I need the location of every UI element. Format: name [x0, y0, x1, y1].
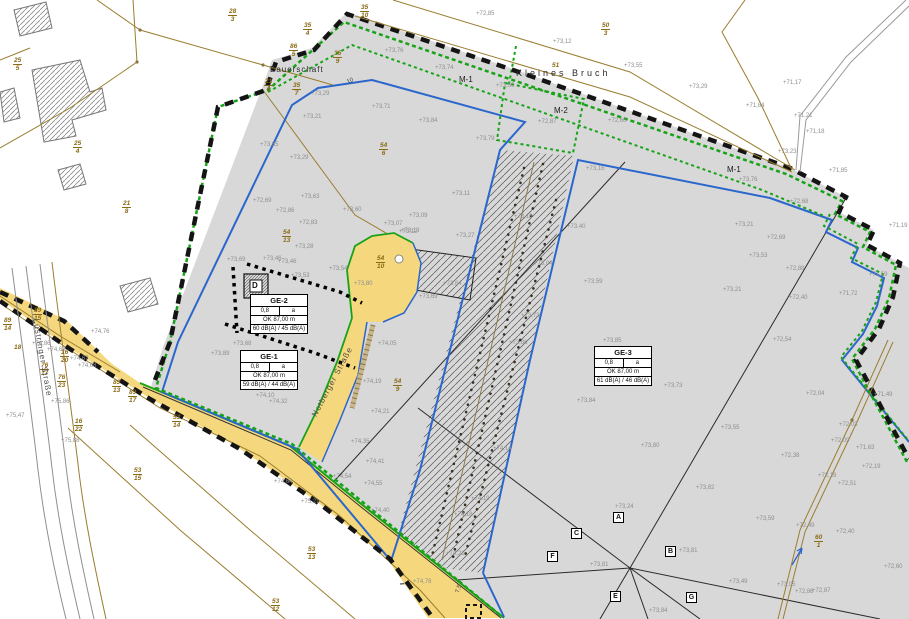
elevation-label: +72,69 — [253, 198, 272, 204]
elevation-label: +73,84 — [577, 398, 596, 404]
elevation-label: +73,54 — [329, 266, 348, 272]
zone-bauweise: a — [624, 359, 652, 367]
elevation-label: +72,18 — [818, 473, 837, 479]
parcel-number: 25 — [13, 57, 22, 65]
elevation-label: +73,29 — [689, 84, 708, 90]
elevation-label: +74,32 — [269, 399, 288, 405]
elevation-label: +72,68 — [790, 199, 809, 205]
elevation-label: +72,83 — [299, 220, 318, 226]
elevation-label: +71,19 — [889, 223, 908, 229]
elevation-label: +73,73 — [521, 313, 540, 319]
elevation-label: +74,54 — [333, 474, 352, 480]
elevation-label: +73,40 — [567, 224, 586, 230]
elevation-label: +74,19 — [471, 496, 490, 502]
elevation-label: +75,86 — [51, 399, 70, 405]
elevation-label: +73,35 — [260, 142, 279, 148]
parcel-number: 53 — [172, 414, 181, 422]
parcel-denominator: 13 — [282, 237, 291, 244]
elevation-label: +74,18 — [454, 512, 473, 518]
parcel-label: 7623 — [57, 374, 66, 389]
elevation-label: +74,21 — [371, 409, 390, 415]
elevation-label: +74,14 — [493, 446, 512, 452]
zone-grz-row: 0,8a — [251, 307, 307, 316]
elevation-label: +72,40 — [836, 529, 855, 535]
elevation-label: +73,76 — [385, 48, 404, 54]
parcel-denominator: 15 — [133, 475, 142, 482]
parcel-denominator: 14 — [172, 422, 181, 429]
section-marker-g: G — [686, 592, 697, 603]
map-label-layer: +72,85+73,12+73,76+73,74+73,60+73,71+73,… — [0, 0, 909, 619]
elevation-label: +71,21 — [794, 113, 813, 119]
parcel-denominator: 4 — [303, 30, 312, 37]
parcel-label: 8914 — [3, 317, 12, 332]
parcel-number: 89 — [112, 379, 121, 387]
elevation-label: +72,03 — [839, 422, 858, 428]
elevation-label: +73,05 — [777, 582, 796, 588]
parcel-label: 359 — [333, 50, 342, 65]
section-marker-f: F — [547, 551, 558, 562]
zone-bauweise: a — [270, 363, 298, 371]
parcel-number: 54 — [282, 229, 291, 237]
zone-info-box-ge-1: GE-10,8aOK 87,00 m59 dB(A) / 44 dB(A) — [240, 350, 298, 390]
parcel-number: 86 — [289, 43, 298, 51]
parcel-number: 54 — [379, 142, 388, 150]
elevation-label: +71,49 — [874, 392, 893, 398]
elevation-label: +73,81 — [679, 548, 698, 554]
elevation-label: +73,12 — [553, 39, 572, 45]
parcel-number: 53 — [307, 546, 316, 554]
elevation-label: +73,55 — [624, 63, 643, 69]
parcel-label: 8917 — [128, 389, 137, 404]
parcel-number: 16 — [74, 418, 83, 426]
elevation-label: +73,16 — [586, 166, 605, 172]
parcel-label: 503 — [601, 22, 610, 37]
elevation-label: +72,60 — [884, 564, 903, 570]
parcel-denominator: 17 — [128, 397, 137, 404]
parcel-number: 53 — [133, 467, 142, 475]
elevation-label: +73,69 — [419, 294, 438, 300]
elevation-label: +74,76 — [91, 329, 110, 335]
elevation-label: +73,59 — [584, 279, 603, 285]
elevation-label: +72,19 — [862, 464, 881, 470]
parcel-number: 35 — [303, 22, 312, 30]
elevation-label: +74,78 — [413, 579, 432, 585]
parcel-number: 54 — [393, 378, 402, 386]
parcel-number: 21 — [264, 78, 273, 86]
elevation-label: +74,21 — [446, 551, 465, 557]
parcel-label: 216 — [264, 78, 273, 93]
elevation-label: +73,55 — [721, 425, 740, 431]
elevation-label: +73,60 — [496, 83, 515, 89]
elevation-label: +72,87 — [812, 588, 831, 594]
elevation-label: +72,86 — [795, 589, 814, 595]
elevation-label: +73,21 — [735, 222, 754, 228]
zoning-plan-map: +72,85+73,12+73,76+73,74+73,60+73,71+73,… — [0, 0, 909, 619]
elevation-label: +73,76 — [739, 177, 758, 183]
zone-grz: 0,8 — [251, 307, 280, 315]
zone-grz-row: 0,8a — [595, 359, 651, 368]
parcel-label: 255 — [13, 57, 22, 72]
parcel-denominator: 5 — [13, 65, 22, 72]
elevation-label: +73,09 — [409, 213, 428, 219]
elevation-label: +74,67 — [70, 356, 89, 362]
elevation-label: +73,73 — [664, 383, 683, 389]
elevation-label: +73,84 — [419, 118, 438, 124]
elevation-label: +73,74 — [435, 65, 454, 71]
elevation-label: +73,12 — [399, 229, 418, 235]
elevation-label: +73,84 — [443, 281, 462, 287]
parcel-number: 89 — [128, 389, 137, 397]
elevation-label: +73,63 — [301, 194, 320, 200]
elevation-label: +73,80 — [641, 443, 660, 449]
section-marker-e: E — [610, 591, 621, 602]
m1-label-b: M-1 — [727, 165, 741, 174]
bauerschaft-label: Bauerschaft — [270, 65, 324, 74]
elevation-label: +72,54 — [773, 337, 792, 343]
elevation-label: +74,35 — [351, 439, 370, 445]
parcel-number: 35 — [360, 4, 369, 12]
zone-info-box-ge-3: GE-30,8aOK 87,00 m61 dB(A) / 46 dB(A) — [594, 346, 652, 386]
elevation-label: +73,27 — [456, 233, 475, 239]
street-luestringer-strasse: Lüstringer Straße — [31, 318, 54, 397]
elevation-label: +74,64 — [274, 479, 293, 485]
elevation-label: +73,85 — [603, 338, 622, 344]
parcel-denominator: 13 — [112, 387, 121, 394]
zone-height: OK 87,00 m — [595, 368, 651, 377]
elevation-label: +73,71 — [372, 104, 391, 110]
parcel-number: 35 — [333, 50, 342, 58]
parcel-denominator: 10 — [376, 263, 385, 270]
elevation-label: +73,89 — [211, 351, 230, 357]
parcel-label: 254 — [73, 140, 82, 155]
elevation-label: +73,18 — [514, 214, 533, 220]
elevation-label: +72,88 — [786, 266, 805, 272]
parcel-number: 16 — [60, 349, 69, 357]
parcel-number: 76 — [57, 374, 66, 382]
parcel-label: 5413 — [282, 229, 291, 244]
parcel-label: 5314 — [172, 414, 181, 429]
parcel-number: 50 — [601, 22, 610, 30]
elevation-label: +71,18 — [806, 129, 825, 135]
elevation-label: +72,60 — [608, 118, 627, 124]
elevation-label: +73,21 — [723, 287, 742, 293]
parcel-denominator: 1 — [814, 542, 823, 549]
elevation-label: +73,24 — [615, 504, 634, 510]
parcel-label: 549 — [393, 378, 402, 393]
parcel-denominator: 8 — [122, 208, 131, 215]
parcel-label: 865 — [289, 43, 298, 58]
parcel-number: 60 — [814, 534, 823, 542]
parcel-number: 28 — [228, 8, 237, 16]
elevation-label: +74,40 — [371, 508, 390, 514]
parcel-number: 54 — [376, 255, 385, 263]
elevation-label: +73,23 — [778, 149, 797, 155]
elevation-label: +73,28 — [295, 244, 314, 250]
zone-id: GE-1 — [241, 351, 297, 363]
zone-grz: 0,8 — [595, 359, 624, 367]
zone-height: OK 87,00 m — [241, 372, 297, 381]
parcel-denominator: 6 — [379, 150, 388, 157]
d-marker-letter: D — [252, 281, 258, 290]
zone-height: OK 87,00 m — [251, 316, 307, 325]
zone-id: GE-3 — [595, 347, 651, 359]
kleines-bruch-label: Kleines Bruch — [516, 68, 611, 78]
parcel-label: 5312 — [271, 598, 280, 613]
parcel-label: 218 — [122, 200, 131, 215]
elevation-label: +72,69 — [767, 235, 786, 241]
parcel-denominator: 6 — [264, 86, 273, 93]
parcel-number: 53 — [271, 598, 280, 606]
elevation-label: +73,53 — [291, 273, 310, 279]
elevation-label: +73,07 — [384, 221, 403, 227]
elevation-label: +73,84 — [649, 608, 668, 614]
elevation-label: +72,85 — [476, 11, 495, 17]
elevation-label: +73,86 — [509, 340, 528, 346]
parcel-number: 25 — [73, 140, 82, 148]
elevation-label: +72,38 — [781, 453, 800, 459]
parcel-label: 5315 — [133, 467, 142, 482]
zone-id: GE-2 — [251, 295, 307, 307]
elevation-label: +71,63 — [856, 445, 875, 451]
parcel-denominator: 3 — [228, 16, 237, 23]
elevation-label: +75,88 — [61, 438, 80, 444]
elevation-label: +74,05 — [378, 341, 397, 347]
zone-grz-row: 0,8a — [241, 363, 297, 372]
elevation-label: +73,79 — [476, 136, 495, 142]
elevation-label: +73,46 — [263, 256, 282, 262]
elevation-label: +73,49 — [729, 579, 748, 585]
parcel-denominator: 7 — [292, 90, 301, 97]
parcel-number: 89 — [33, 307, 42, 315]
elevation-label: +74,68 — [78, 363, 97, 369]
elevation-label: +74,41 — [366, 459, 385, 465]
parcel-denominator: 3 — [601, 30, 610, 37]
dim-7-5: 7,5 — [455, 584, 463, 594]
elevation-label: +73,11 — [452, 191, 470, 197]
zone-noise-levels: 60 dB(A) / 45 dB(A) — [251, 325, 307, 333]
parcel-number: 89 — [3, 317, 12, 325]
parcel-denominator: 22 — [74, 426, 83, 433]
elevation-label: +74,55 — [364, 481, 383, 487]
m1-label-a: M-1 — [459, 75, 473, 84]
elevation-label: +73,81 — [590, 562, 609, 568]
parcel-label: 18 — [14, 344, 21, 351]
elevation-label: +72,04 — [806, 391, 825, 397]
m2-label: M-2 — [554, 106, 568, 115]
elevation-label: +73,04 — [534, 261, 553, 267]
elevation-label: +72,87 — [538, 119, 557, 125]
elevation-label: +73,59 — [756, 516, 775, 522]
section-marker-c: C — [571, 528, 582, 539]
elevation-label: +74,19 — [363, 379, 382, 385]
parcel-denominator: 23 — [57, 382, 66, 389]
elevation-label: +73,69 — [227, 257, 246, 263]
parcel-denominator: 20 — [60, 357, 69, 364]
parcel-denominator: 10 — [360, 12, 369, 19]
zone-grz: 0,8 — [241, 363, 270, 371]
parcel-denominator: 9 — [393, 386, 402, 393]
elevation-label: +75,47 — [6, 413, 25, 419]
parcel-label: 357 — [292, 82, 301, 97]
section-marker-a: A — [613, 512, 624, 523]
elevation-label: +73,80 — [354, 281, 373, 287]
elevation-label: +71,72 — [839, 291, 858, 297]
elevation-label: +73,68 — [233, 341, 252, 347]
parcel-label: 5410 — [376, 255, 385, 270]
parcel-label: 3510 — [360, 4, 369, 19]
parcel-number: 21 — [122, 200, 131, 208]
elevation-label: +72,40 — [789, 295, 808, 301]
zone-info-box-ge-2: GE-20,8aOK 87,00 m60 dB(A) / 45 dB(A) — [250, 294, 308, 334]
parcel-denominator: 5 — [289, 51, 298, 58]
elevation-label: +73,29 — [290, 155, 309, 161]
elevation-label: +72,86 — [276, 208, 295, 214]
dim-10: 10 — [346, 77, 355, 85]
parcel-denominator: 9 — [333, 58, 342, 65]
elevation-label: +73,53 — [749, 253, 768, 259]
parcel-label: 1620 — [60, 349, 69, 364]
zone-noise-levels: 61 dB(A) / 46 dB(A) — [595, 377, 651, 385]
parcel-number: 35 — [292, 82, 301, 90]
parcel-denominator: 14 — [3, 325, 12, 332]
elevation-label: +73,21 — [303, 114, 322, 120]
elevation-label: +71,85 — [829, 168, 848, 174]
parcel-label: 1622 — [74, 418, 83, 433]
parcel-label: 283 — [228, 8, 237, 23]
zone-bauweise: a — [280, 307, 308, 315]
elevation-label: +71,84 — [746, 103, 765, 109]
elevation-label: +72,09 — [831, 438, 850, 444]
street-notberger-strasse: Notberger Straße — [310, 345, 354, 418]
parcel-label: 8913 — [112, 379, 121, 394]
section-marker-b: B — [665, 546, 676, 557]
elevation-label: +72,49 — [796, 523, 815, 529]
elevation-label: +75,21 — [301, 499, 320, 505]
parcel-denominator: 13 — [307, 554, 316, 561]
parcel-denominator: 12 — [271, 606, 280, 613]
elevation-label: +73,60 — [343, 207, 362, 213]
parcel-label: 601 — [814, 534, 823, 549]
parcel-label: 354 — [303, 22, 312, 37]
zone-noise-levels: 59 dB(A) / 44 dB(A) — [241, 381, 297, 389]
parcel-label: 5313 — [307, 546, 316, 561]
parcel-denominator: 4 — [73, 148, 82, 155]
elevation-label: +71,59 — [869, 272, 888, 278]
elevation-label: +73,82 — [696, 485, 715, 491]
elevation-label: +71,17 — [783, 80, 802, 86]
elevation-label: +73,29 — [311, 91, 330, 97]
elevation-label: +72,51 — [838, 481, 857, 487]
parcel-label: 546 — [379, 142, 388, 157]
